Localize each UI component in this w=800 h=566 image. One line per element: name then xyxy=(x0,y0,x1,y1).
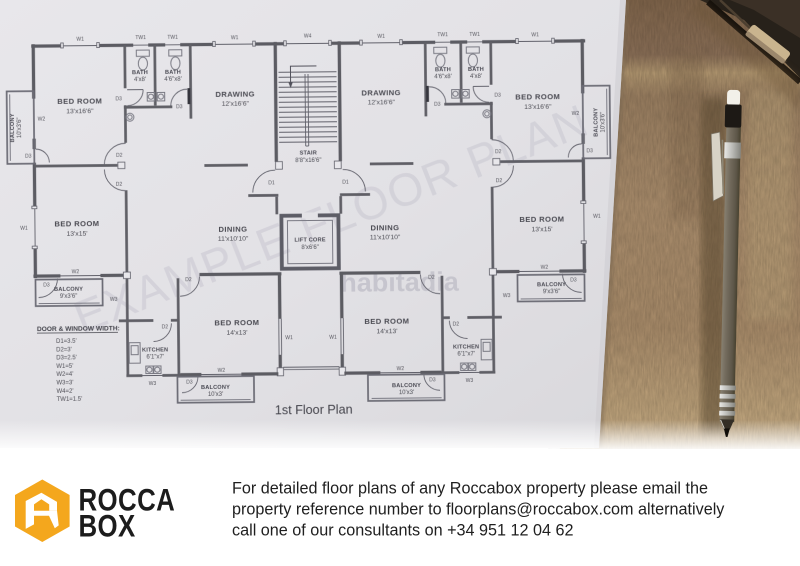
svg-text:BATH: BATH xyxy=(468,67,484,73)
svg-text:10'x3': 10'x3' xyxy=(208,392,223,398)
svg-text:W3: W3 xyxy=(149,381,157,387)
svg-text:4'6"x8': 4'6"x8' xyxy=(164,77,181,83)
svg-text:D3: D3 xyxy=(176,104,183,110)
svg-text:W1: W1 xyxy=(20,226,28,232)
svg-text:W2=4': W2=4' xyxy=(56,372,73,378)
svg-text:BALCONY: BALCONY xyxy=(10,113,16,142)
svg-text:D3: D3 xyxy=(186,380,193,386)
svg-text:BATH: BATH xyxy=(132,70,148,76)
svg-text:4'6"x8': 4'6"x8' xyxy=(434,74,451,80)
svg-text:W3: W3 xyxy=(466,378,474,384)
svg-text:W1: W1 xyxy=(329,335,337,341)
svg-text:D1: D1 xyxy=(342,180,349,186)
svg-text:TW1: TW1 xyxy=(437,32,448,38)
svg-text:W1: W1 xyxy=(231,35,239,41)
svg-text:W2: W2 xyxy=(72,269,80,275)
svg-text:13'x15': 13'x15' xyxy=(531,226,552,233)
svg-text:BED ROOM: BED ROOM xyxy=(57,96,102,105)
svg-text:call one of our consultants on: call one of our consultants on +34 951 1… xyxy=(232,522,574,540)
svg-text:12'x16'6": 12'x16'6" xyxy=(368,99,396,106)
svg-text:For detailed floor plans of an: For detailed floor plans of any Roccabox… xyxy=(232,480,708,498)
svg-text:BALCONY: BALCONY xyxy=(201,385,230,391)
svg-text:D3: D3 xyxy=(434,102,441,108)
svg-text:D2: D2 xyxy=(116,153,123,159)
svg-text:STAIR: STAIR xyxy=(300,150,317,156)
svg-text:DRAWING: DRAWING xyxy=(361,88,401,97)
svg-text:1st Floor Plan: 1st Floor Plan xyxy=(275,403,353,418)
svg-text:TW1: TW1 xyxy=(167,35,178,41)
svg-text:4'x8': 4'x8' xyxy=(134,77,146,83)
svg-text:BALCONY: BALCONY xyxy=(537,282,566,288)
svg-text:W2: W2 xyxy=(38,117,46,123)
svg-text:BED ROOM: BED ROOM xyxy=(515,92,560,101)
svg-text:W1: W1 xyxy=(285,335,293,341)
svg-text:TW1=1.5': TW1=1.5' xyxy=(57,397,83,403)
svg-text:DRAWING: DRAWING xyxy=(215,90,255,99)
svg-text:property reference number to f: property reference number to floorplans@… xyxy=(232,501,725,519)
svg-text:BATH: BATH xyxy=(165,70,181,76)
svg-text:8'x6'6": 8'x6'6" xyxy=(301,245,318,251)
svg-text:8'8"x16'6": 8'8"x16'6" xyxy=(295,158,321,164)
svg-text:DOOR & WINDOW WIDTH:: DOOR & WINDOW WIDTH: xyxy=(37,325,120,333)
svg-text:13'x16'6": 13'x16'6" xyxy=(524,104,552,111)
svg-text:11'x10'10": 11'x10'10" xyxy=(370,234,401,241)
svg-text:W1: W1 xyxy=(76,37,84,43)
svg-text:W1: W1 xyxy=(593,214,601,220)
svg-text:9'x3'6": 9'x3'6" xyxy=(60,294,77,300)
svg-text:W4: W4 xyxy=(304,33,312,39)
svg-text:W2: W2 xyxy=(218,368,226,374)
svg-text:KITCHEN: KITCHEN xyxy=(142,347,168,353)
svg-text:DINING: DINING xyxy=(218,225,247,234)
svg-text:W1=5': W1=5' xyxy=(56,364,73,370)
svg-text:D2=3': D2=3' xyxy=(56,347,72,353)
svg-text:D2: D2 xyxy=(453,322,460,328)
svg-text:D1: D1 xyxy=(268,180,275,186)
svg-text:9'x3'6": 9'x3'6" xyxy=(543,289,560,295)
svg-text:W3=3': W3=3' xyxy=(56,380,73,386)
svg-text:BALCONY: BALCONY xyxy=(54,287,83,293)
svg-text:D3: D3 xyxy=(429,377,436,383)
svg-text:D3: D3 xyxy=(494,93,501,99)
svg-text:BALCONY: BALCONY xyxy=(593,108,599,137)
svg-text:W2: W2 xyxy=(541,265,549,271)
svg-text:D2: D2 xyxy=(496,178,503,184)
svg-text:D2: D2 xyxy=(162,324,169,330)
svg-text:BOX: BOX xyxy=(79,509,136,544)
svg-text:D2: D2 xyxy=(495,149,502,155)
svg-text:10'x3'6": 10'x3'6" xyxy=(600,112,606,133)
svg-text:W1: W1 xyxy=(377,34,385,40)
svg-text:D3: D3 xyxy=(570,277,577,283)
svg-text:LIFT CORE: LIFT CORE xyxy=(294,237,325,243)
svg-text:DINING: DINING xyxy=(370,223,399,232)
svg-text:D3: D3 xyxy=(587,148,594,154)
svg-text:D2: D2 xyxy=(185,277,192,283)
svg-text:TW1: TW1 xyxy=(135,35,146,41)
svg-text:KITCHEN: KITCHEN xyxy=(453,344,479,350)
svg-text:D2: D2 xyxy=(428,275,435,281)
svg-text:6'1"x7': 6'1"x7' xyxy=(457,351,474,357)
svg-text:W3: W3 xyxy=(110,297,118,303)
svg-text:TW1: TW1 xyxy=(469,32,480,38)
svg-text:D3: D3 xyxy=(25,154,32,160)
svg-text:11'x10'10": 11'x10'10" xyxy=(218,236,249,243)
svg-text:W2: W2 xyxy=(572,111,580,117)
svg-text:4'x8': 4'x8' xyxy=(470,74,482,80)
svg-text:10'x3'6": 10'x3'6" xyxy=(17,117,23,138)
svg-text:D3: D3 xyxy=(43,282,50,288)
svg-text:W2: W2 xyxy=(397,366,405,372)
svg-text:D3=2.5': D3=2.5' xyxy=(56,355,77,361)
svg-text:13'x15': 13'x15' xyxy=(66,231,87,238)
svg-text:BED ROOM: BED ROOM xyxy=(214,318,259,327)
svg-text:BATH: BATH xyxy=(435,67,451,73)
svg-text:10'x3': 10'x3' xyxy=(399,390,414,396)
svg-text:D3: D3 xyxy=(116,96,123,102)
svg-text:D1=3.5': D1=3.5' xyxy=(56,339,77,345)
svg-text:14'x13': 14'x13' xyxy=(376,328,397,335)
svg-text:6'1"x7': 6'1"x7' xyxy=(146,354,163,360)
svg-text:W4=2': W4=2' xyxy=(57,389,74,395)
svg-text:12'x16'6": 12'x16'6" xyxy=(222,101,250,108)
svg-text:13'x16'6": 13'x16'6" xyxy=(66,108,94,115)
svg-text:W1: W1 xyxy=(531,32,539,38)
svg-text:D2: D2 xyxy=(116,182,123,188)
svg-text:BED ROOM: BED ROOM xyxy=(364,317,409,326)
svg-text:BED ROOM: BED ROOM xyxy=(519,215,564,224)
svg-text:BED ROOM: BED ROOM xyxy=(54,219,99,228)
svg-text:BALCONY: BALCONY xyxy=(392,383,421,389)
svg-text:14'x13': 14'x13' xyxy=(226,330,247,337)
svg-text:W3: W3 xyxy=(503,293,511,299)
